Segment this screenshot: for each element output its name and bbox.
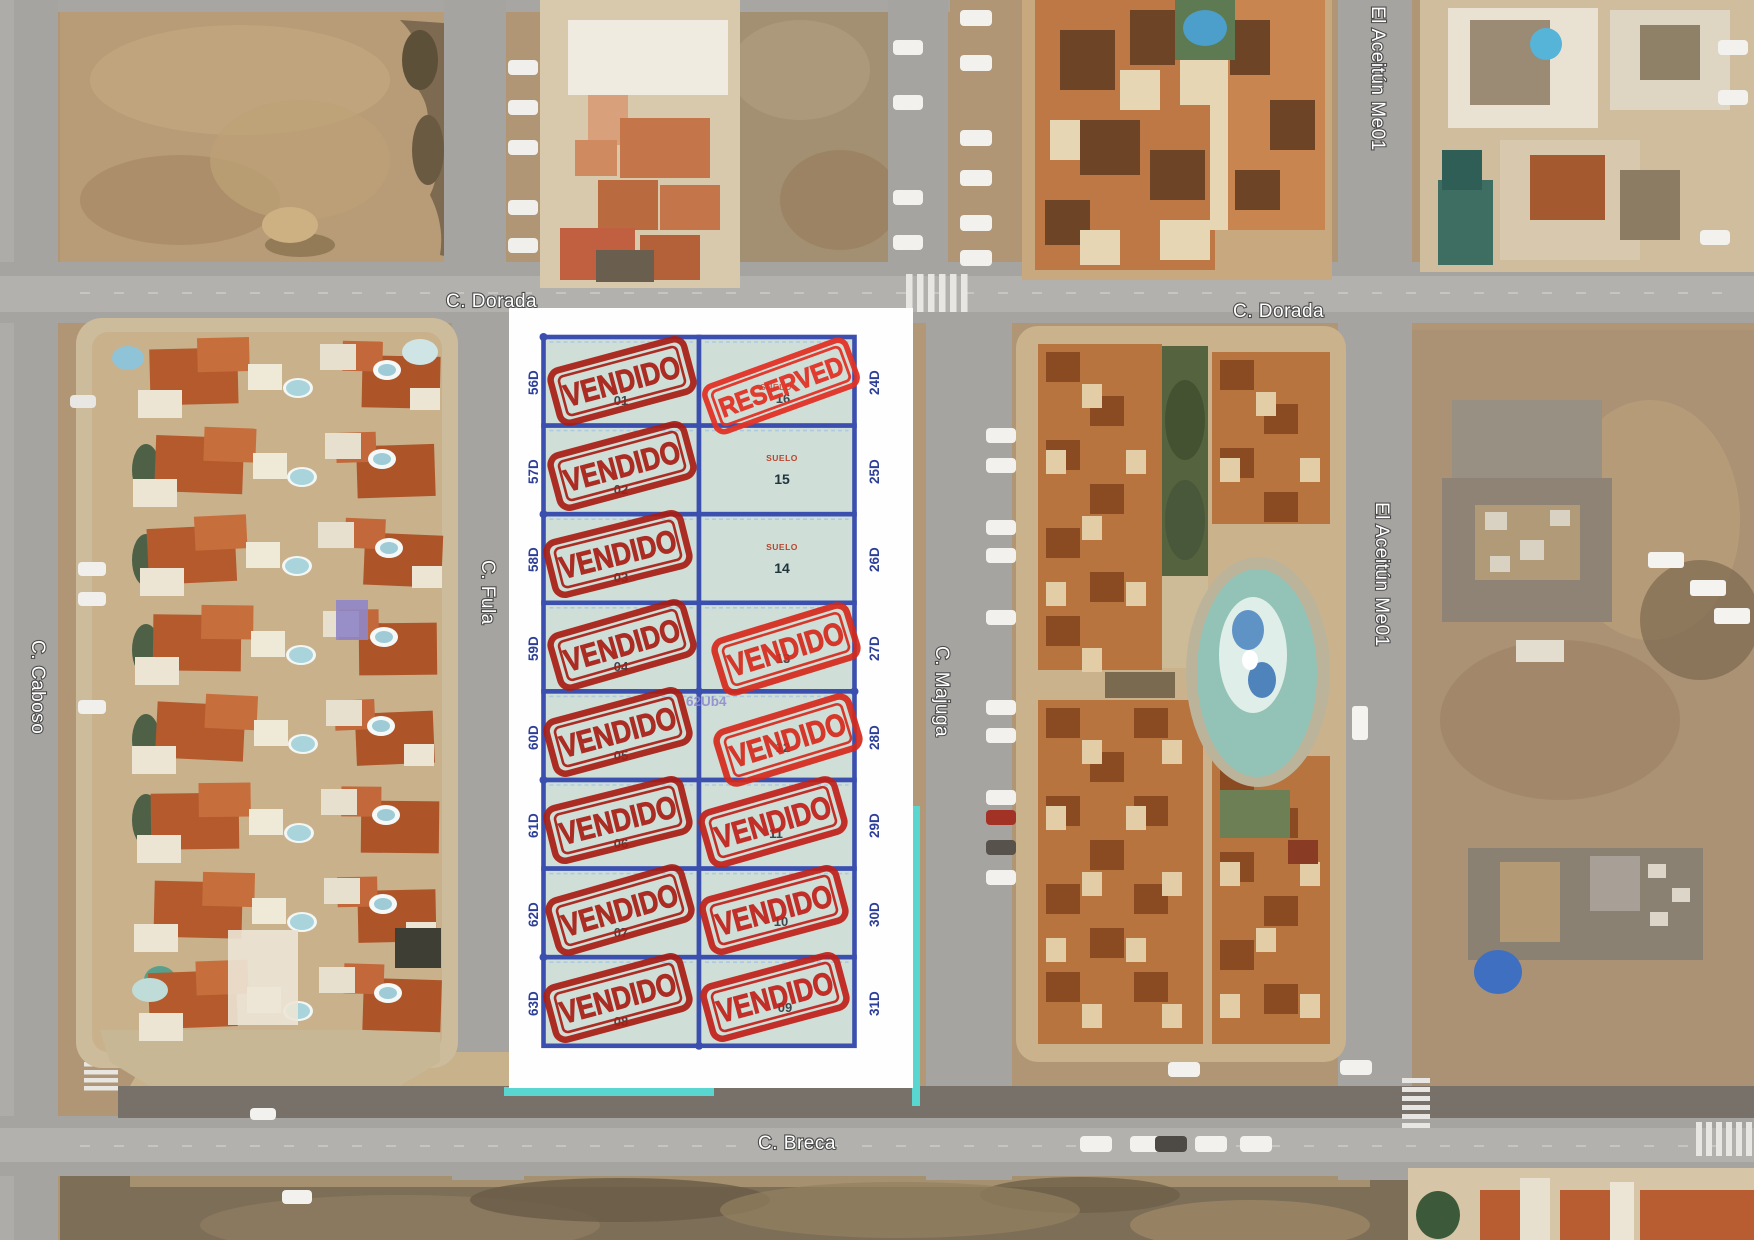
svg-text:C. Dorada: C. Dorada bbox=[1233, 301, 1324, 322]
svg-text:63D: 63D bbox=[526, 991, 541, 1016]
svg-text:SUELO: SUELO bbox=[766, 542, 798, 552]
svg-text:15: 15 bbox=[774, 471, 790, 487]
svg-text:25D: 25D bbox=[867, 459, 882, 484]
svg-text:27D: 27D bbox=[867, 636, 882, 661]
svg-text:El Aceitún Me01: El Aceitún Me01 bbox=[1367, 6, 1388, 151]
svg-text:31D: 31D bbox=[867, 991, 882, 1016]
svg-text:30D: 30D bbox=[867, 902, 882, 927]
svg-text:59D: 59D bbox=[526, 636, 541, 661]
svg-text:C. Caboso: C. Caboso bbox=[27, 640, 48, 734]
svg-text:C. Fula: C. Fula bbox=[477, 560, 498, 625]
svg-text:60D: 60D bbox=[526, 725, 541, 750]
svg-text:14: 14 bbox=[774, 560, 790, 576]
svg-text:29D: 29D bbox=[867, 813, 882, 838]
svg-text:C. Breca: C. Breca bbox=[758, 1133, 836, 1154]
svg-text:28D: 28D bbox=[867, 725, 882, 750]
svg-text:62Ub4: 62Ub4 bbox=[686, 694, 727, 709]
svg-text:56D: 56D bbox=[526, 370, 541, 395]
svg-text:58D: 58D bbox=[526, 547, 541, 572]
svg-text:24D: 24D bbox=[867, 370, 882, 395]
svg-text:57D: 57D bbox=[526, 459, 541, 484]
svg-text:El Aceitún Me01: El Aceitún Me01 bbox=[1371, 502, 1392, 647]
svg-text:62D: 62D bbox=[526, 902, 541, 927]
svg-text:SUELO: SUELO bbox=[766, 453, 798, 463]
svg-text:C. Majuga: C. Majuga bbox=[931, 646, 952, 737]
svg-text:61D: 61D bbox=[526, 813, 541, 838]
svg-text:26D: 26D bbox=[867, 547, 882, 572]
